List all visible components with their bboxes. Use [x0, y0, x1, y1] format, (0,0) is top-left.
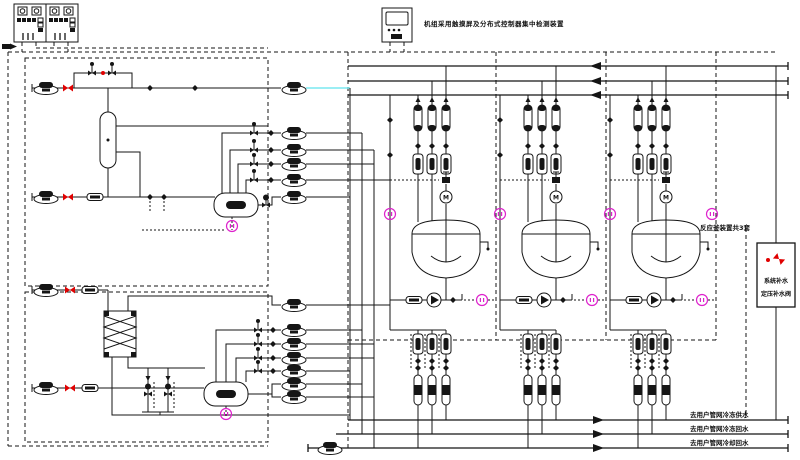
pid-diagram: M: [0, 0, 800, 460]
pipe-label-3: 去用户管网冷却回水: [690, 438, 749, 447]
chiller-drum-icon: [204, 382, 248, 406]
reactor-count-label: 反应釜装置共3套: [700, 223, 751, 232]
bottom-return-headers: 去用户管网冷冻供水 去用户管网冷冻回水 去用户管网冷却回水: [308, 410, 788, 455]
screw-pump-icon: [34, 382, 58, 395]
hmi-controller: [382, 8, 412, 52]
pid-canvas: M: [0, 0, 800, 460]
hmi-caption-label: 机组采用触摸屏及分布式控制器集中检测装置: [424, 19, 564, 28]
reactor-train-3: [605, 66, 715, 448]
reactor-train-2: [495, 66, 605, 448]
reactor-train-1: [385, 66, 495, 448]
chiller-section-upper: [32, 62, 281, 232]
control-panel-right: [46, 4, 78, 42]
separator-column-icon: [100, 112, 116, 168]
makeup-label-2: 定压补水阀: [760, 290, 791, 298]
screw-pump-icon: [34, 191, 58, 204]
makeup-pump-icon: [318, 442, 342, 455]
pipe-label-2: 去用户管网冷冻回水: [690, 424, 749, 433]
makeup-water-box: 系统补水 定压补水阀: [757, 243, 795, 307]
middle-pump-column: [282, 82, 390, 448]
panel-signal-drops: [2, 42, 68, 52]
cable-connector-icon: [2, 44, 10, 49]
plate-heat-exchanger-icon: [104, 311, 136, 357]
pipe-label-1: 去用户管网冷冻供水: [690, 410, 749, 419]
chiller-drum-icon: [214, 193, 258, 217]
screw-pump-icon: [34, 82, 58, 95]
red-shutoff-valve-icon: [63, 85, 73, 92]
control-panel-left: [14, 4, 46, 42]
makeup-label-1: 系统补水: [764, 277, 789, 285]
